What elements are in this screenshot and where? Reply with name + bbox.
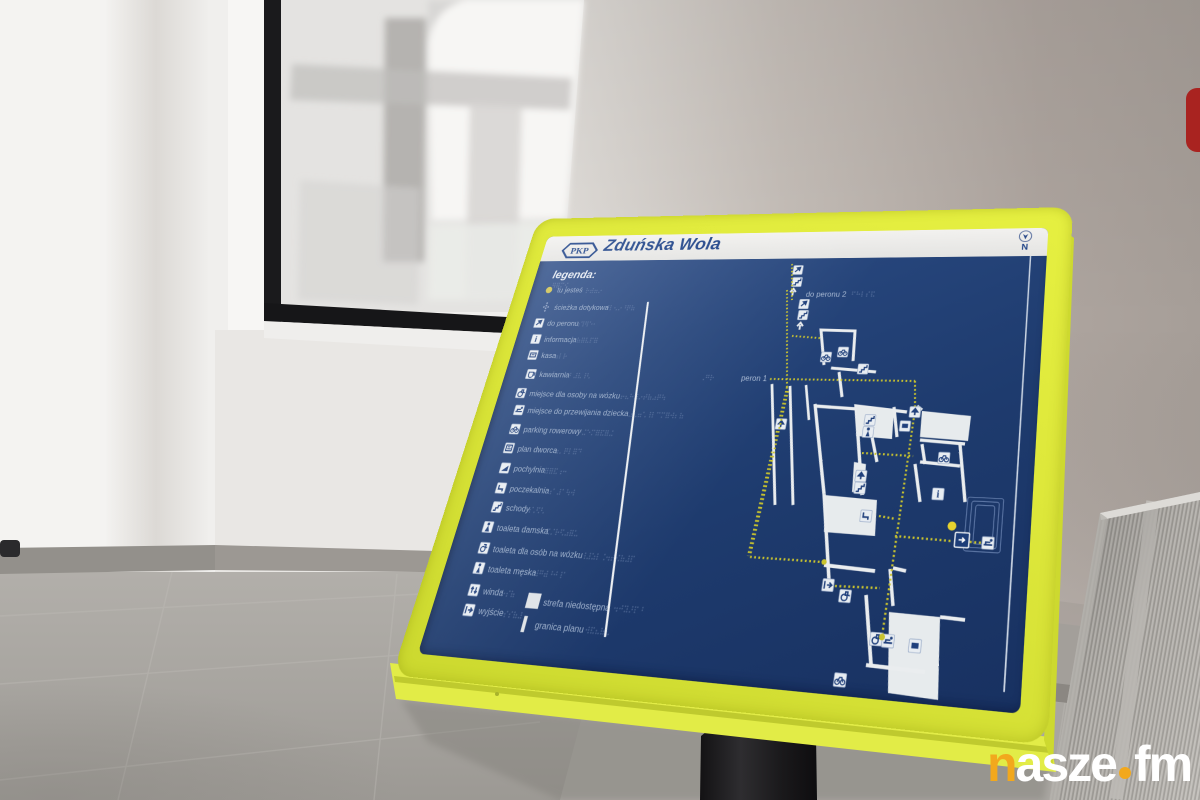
svg-text:parking rowerowy: parking rowerowy: [522, 426, 583, 437]
svg-text:poczekalnia: poczekalnia: [508, 485, 551, 497]
svg-text:peron 1: peron 1: [740, 376, 768, 384]
svg-text:do peronu: do peronu: [546, 320, 580, 328]
svg-text:N: N: [1021, 244, 1028, 253]
svg-text:granica planu: granica planu: [533, 621, 585, 636]
svg-text:PKP: PKP: [569, 246, 590, 256]
svg-text:do peronu 2: do peronu 2: [805, 292, 847, 299]
svg-text:toaleta damska: toaleta damska: [495, 524, 550, 537]
svg-text:informacja: informacja: [543, 336, 578, 345]
svg-text:legenda:: legenda:: [551, 269, 598, 281]
svg-text:ścieżka dotykowa: ścieżka dotykowa: [553, 304, 610, 312]
svg-text:miejsce do przewijania dziecka: miejsce do przewijania dziecka: [526, 407, 630, 419]
svg-text:toaleta dla osób na wózku: toaleta dla osób na wózku: [492, 545, 585, 561]
svg-text:kawiarnia: kawiarnia: [538, 371, 571, 380]
svg-text:tu jesteś: tu jesteś: [556, 287, 584, 295]
svg-text:toaleta męska: toaleta męska: [487, 565, 539, 579]
svg-text:miejsce dla osoby na wózku: miejsce dla osoby na wózku: [528, 390, 622, 401]
svg-text:wyjście: wyjście: [475, 607, 505, 620]
svg-text:winda: winda: [480, 587, 505, 599]
svg-text:pochylnia: pochylnia: [512, 465, 547, 476]
svg-text:plan dworca: plan dworca: [516, 445, 559, 456]
svg-text:strefa niedostępna: strefa niedostępna: [542, 598, 612, 614]
